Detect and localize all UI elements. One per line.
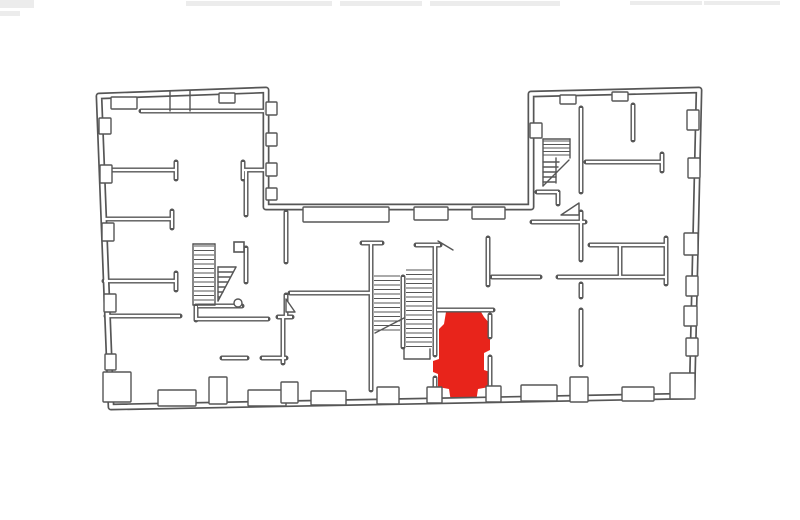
floor-plan-page bbox=[0, 0, 800, 520]
floor-plan-drawing bbox=[0, 0, 800, 520]
plan-details bbox=[234, 242, 244, 307]
wall-piers bbox=[99, 92, 700, 406]
top-edge-smudges bbox=[0, 0, 780, 16]
walls bbox=[99, 90, 699, 407]
